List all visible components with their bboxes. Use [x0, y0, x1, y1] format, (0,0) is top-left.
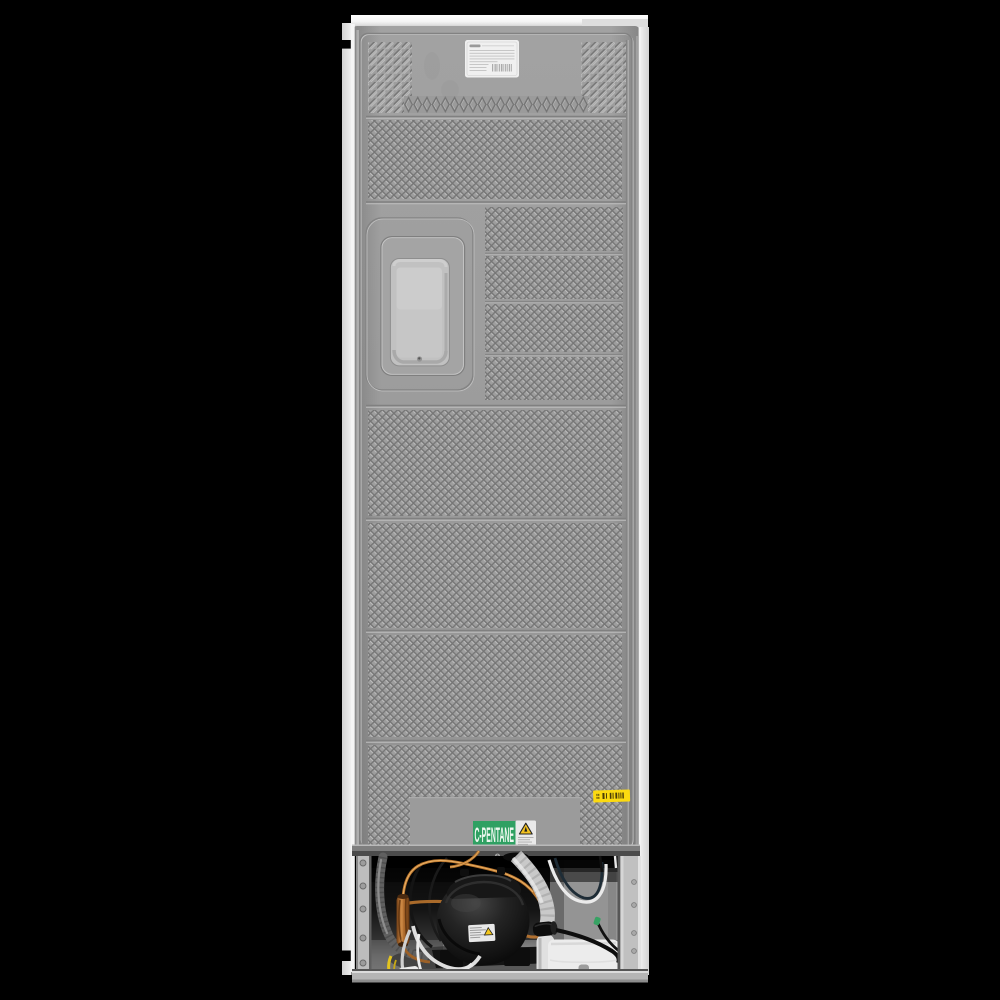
svg-text:C-PENTANE: C-PENTANE [474, 823, 514, 847]
